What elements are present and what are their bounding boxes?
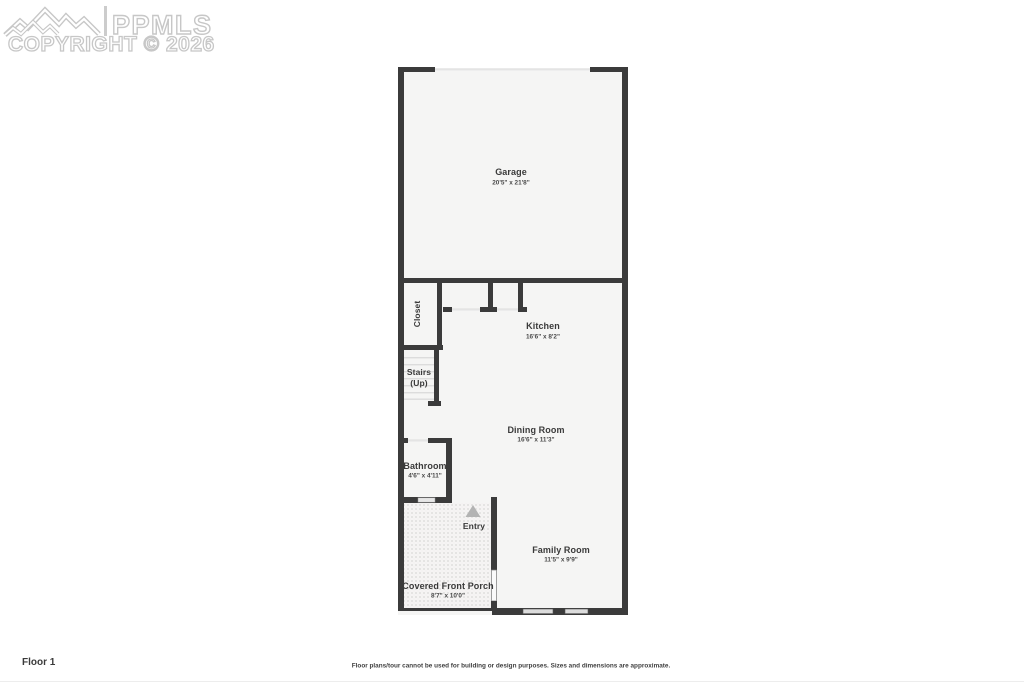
room-label-dining-room: Dining Room: [507, 425, 564, 435]
room-dims-covered-front-porch: 8'7" x 10'0": [431, 593, 465, 600]
porch-bottom-edge: [398, 608, 492, 611]
door-opening-1: [452, 308, 480, 310]
room-label-stairs-line2: (Up): [410, 378, 427, 388]
stair-step: [404, 364, 434, 365]
room-label-family-room: Family Room: [532, 545, 590, 555]
room-dims-garage: 20'5" x 21'8": [492, 180, 530, 187]
ppmls-watermark: PPMLS COPYRIGHT © 2026: [3, 2, 263, 64]
floor-plan-page: { "watermark": { "logo_text": "PPMLS", "…: [0, 0, 1024, 682]
wall-doorrow-stub-2: [480, 307, 497, 312]
watermark-divider: [104, 6, 107, 36]
room-dims-kitchen: 16'6" x 8'2": [526, 334, 560, 341]
wall-left-exterior: [398, 67, 404, 611]
wall-top-left-stub: [398, 67, 435, 72]
room-label-kitchen: Kitchen: [526, 321, 560, 331]
room-label-entry: Entry: [463, 521, 485, 531]
stair-step: [404, 357, 434, 358]
wall-stairs-right: [434, 350, 439, 406]
room-label-closet: Closet: [412, 301, 422, 328]
wall-porch-right: [491, 497, 497, 570]
window-family-1: [523, 609, 553, 614]
wall-stairs-foot: [428, 401, 441, 406]
wall-right-exterior: [622, 67, 628, 615]
wall-family-bottom: [492, 608, 628, 615]
floor-label: Floor 1: [22, 657, 55, 668]
wall-doorrow-stub-1: [443, 307, 452, 312]
stair-step: [404, 399, 434, 400]
bathroom-door-panel: [418, 498, 435, 502]
floor-plan: Garage 20'5" x 21'8" Closet Kitchen 16'6…: [398, 67, 628, 615]
disclaimer-text: Floor plans/tour cannot be used for buil…: [352, 663, 671, 670]
wall-doorrow-stub-3: [518, 307, 527, 312]
room-label-covered-front-porch: Covered Front Porch: [402, 581, 493, 591]
room-label-garage: Garage: [495, 167, 527, 177]
room-dims-dining-room: 16'6" x 11'3": [517, 437, 554, 444]
room-dims-bathroom: 4'6" x 4'11": [408, 473, 442, 480]
stair-step: [404, 392, 434, 393]
room-label-bathroom: Bathroom: [403, 461, 446, 471]
watermark-copyright-text: COPYRIGHT © 2026: [8, 33, 215, 57]
bathroom-door-opening: [408, 439, 428, 441]
wall-bathroom-right: [446, 438, 452, 497]
door-opening-2: [497, 308, 518, 310]
room-label-stairs-line1: Stairs: [407, 367, 431, 377]
wall-bathroom-top-left: [398, 438, 408, 443]
window-family-2: [565, 609, 588, 614]
room-dims-family-room: 11'5" x 9'9": [544, 557, 578, 564]
wall-top-right-stub: [590, 67, 628, 72]
wall-garage-bottom: [398, 278, 628, 283]
garage-door-opening: [435, 68, 590, 70]
floor-plan-drawing: [398, 67, 628, 615]
wall-closet-bottom: [398, 345, 443, 350]
wall-closet-right: [437, 283, 442, 350]
